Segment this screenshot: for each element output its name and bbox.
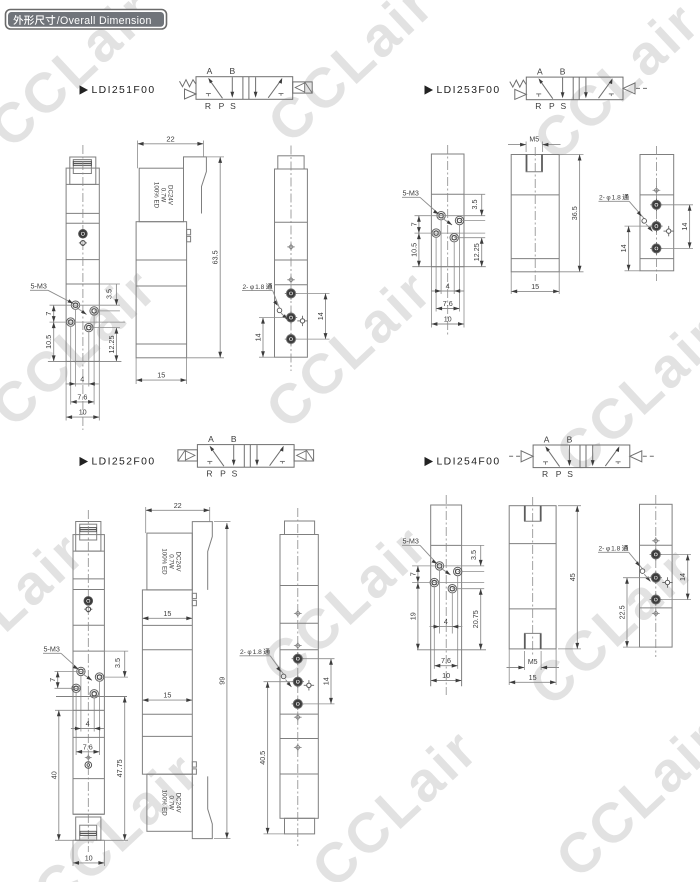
- svg-text:15: 15: [531, 282, 539, 291]
- svg-text:S: S: [230, 101, 236, 111]
- svg-text:LDI251F00: LDI251F00: [92, 85, 156, 96]
- svg-text:/Overall Dimension: /Overall Dimension: [57, 15, 152, 27]
- svg-text:M5: M5: [529, 137, 539, 144]
- svg-text:7.6: 7.6: [77, 392, 87, 401]
- svg-text:63.5: 63.5: [211, 250, 220, 264]
- svg-text:7: 7: [409, 222, 418, 226]
- svg-text:10: 10: [442, 671, 450, 680]
- svg-text:B: B: [231, 434, 237, 444]
- svg-text:15: 15: [163, 691, 171, 700]
- svg-text:2-: 2-: [599, 195, 605, 202]
- svg-text:36.5: 36.5: [570, 206, 579, 220]
- svg-text:A: A: [537, 67, 543, 77]
- svg-text:φ: φ: [250, 284, 254, 291]
- svg-text:1.8: 1.8: [255, 284, 264, 291]
- svg-text:7: 7: [48, 678, 57, 682]
- svg-text:S: S: [560, 101, 566, 111]
- svg-text:M5: M5: [528, 659, 538, 666]
- svg-text:7.6: 7.6: [443, 299, 453, 308]
- svg-text:15: 15: [529, 673, 537, 682]
- svg-text:7.6: 7.6: [441, 656, 451, 665]
- svg-text:P: P: [549, 101, 555, 111]
- svg-text:10.5: 10.5: [44, 335, 53, 349]
- svg-text:14: 14: [322, 677, 331, 685]
- svg-text:40.5: 40.5: [258, 751, 267, 765]
- svg-text:12.25: 12.25: [472, 243, 481, 261]
- svg-text:20.75: 20.75: [471, 610, 480, 628]
- svg-text:7: 7: [408, 572, 417, 576]
- svg-text:7: 7: [44, 312, 53, 316]
- svg-text:3.5: 3.5: [113, 658, 122, 668]
- svg-text:10.5: 10.5: [409, 243, 418, 257]
- svg-text:7.6: 7.6: [83, 742, 93, 751]
- svg-text:99: 99: [217, 677, 226, 685]
- svg-text:14: 14: [254, 333, 263, 341]
- svg-text:2-: 2-: [240, 649, 246, 656]
- svg-text:φ: φ: [606, 546, 610, 553]
- svg-text:15: 15: [157, 371, 165, 380]
- svg-text:4: 4: [86, 719, 90, 728]
- svg-text:B: B: [560, 67, 566, 77]
- svg-text:47.75: 47.75: [115, 759, 124, 777]
- svg-text:10: 10: [444, 315, 452, 324]
- svg-text:100% ED: 100% ED: [161, 790, 168, 817]
- svg-text:14: 14: [619, 244, 628, 252]
- svg-text:LDI253F00: LDI253F00: [437, 85, 501, 96]
- svg-text:1.8: 1.8: [611, 546, 620, 553]
- svg-text:4: 4: [80, 374, 84, 383]
- svg-text:R: R: [205, 101, 211, 111]
- svg-text:19: 19: [408, 612, 417, 620]
- svg-text:5-M3: 5-M3: [403, 189, 419, 198]
- svg-text:DC24V: DC24V: [166, 185, 173, 206]
- svg-text:2-: 2-: [599, 546, 605, 553]
- svg-text:P: P: [220, 469, 226, 479]
- svg-text:R: R: [206, 469, 212, 479]
- svg-text:S: S: [232, 469, 238, 479]
- svg-text:14: 14: [678, 573, 687, 581]
- svg-text:B: B: [229, 66, 235, 76]
- svg-text:4: 4: [446, 282, 450, 291]
- svg-text:14: 14: [316, 312, 325, 320]
- svg-text:0.7W: 0.7W: [168, 795, 175, 810]
- svg-text:3.5: 3.5: [469, 550, 478, 560]
- svg-text:A: A: [207, 66, 213, 76]
- svg-text:R: R: [535, 101, 541, 111]
- svg-text:3.5: 3.5: [105, 289, 114, 299]
- svg-text:10: 10: [85, 853, 93, 862]
- svg-text:5-M3: 5-M3: [44, 645, 60, 654]
- svg-text:DC24V: DC24V: [175, 552, 182, 573]
- svg-text:22: 22: [166, 134, 174, 143]
- svg-text:0.7W: 0.7W: [159, 188, 166, 203]
- svg-text:DC24V: DC24V: [175, 793, 182, 814]
- svg-text:40: 40: [49, 771, 58, 779]
- svg-text:10: 10: [79, 408, 87, 417]
- svg-text:R: R: [542, 469, 548, 479]
- svg-text:12.25: 12.25: [107, 336, 116, 354]
- svg-text:B: B: [567, 435, 573, 445]
- svg-text:15: 15: [163, 609, 171, 618]
- svg-text:φ: φ: [606, 195, 610, 202]
- svg-text:LDI254F00: LDI254F00: [437, 457, 501, 468]
- svg-text:φ: φ: [247, 649, 251, 656]
- svg-text:LDI252F00: LDI252F00: [92, 457, 156, 468]
- svg-text:100% ED: 100% ED: [161, 548, 168, 575]
- svg-text:P: P: [556, 469, 562, 479]
- svg-text:2-: 2-: [243, 284, 249, 291]
- svg-text:5-M3: 5-M3: [403, 537, 419, 546]
- svg-text:45: 45: [568, 573, 577, 581]
- svg-text:A: A: [544, 435, 550, 445]
- svg-text:1.8: 1.8: [253, 649, 262, 656]
- svg-text:3.5: 3.5: [470, 200, 479, 210]
- svg-text:22.5: 22.5: [618, 605, 627, 619]
- svg-text:A: A: [208, 434, 214, 444]
- svg-text:5-M3: 5-M3: [31, 282, 47, 291]
- svg-text:4: 4: [444, 617, 448, 626]
- svg-text:P: P: [219, 101, 225, 111]
- svg-text:0.7W: 0.7W: [168, 554, 175, 569]
- svg-text:22: 22: [174, 501, 182, 510]
- svg-text:14: 14: [680, 223, 689, 231]
- svg-text:1.8: 1.8: [612, 195, 621, 202]
- svg-text:100% ED: 100% ED: [152, 182, 159, 209]
- svg-text:S: S: [567, 469, 573, 479]
